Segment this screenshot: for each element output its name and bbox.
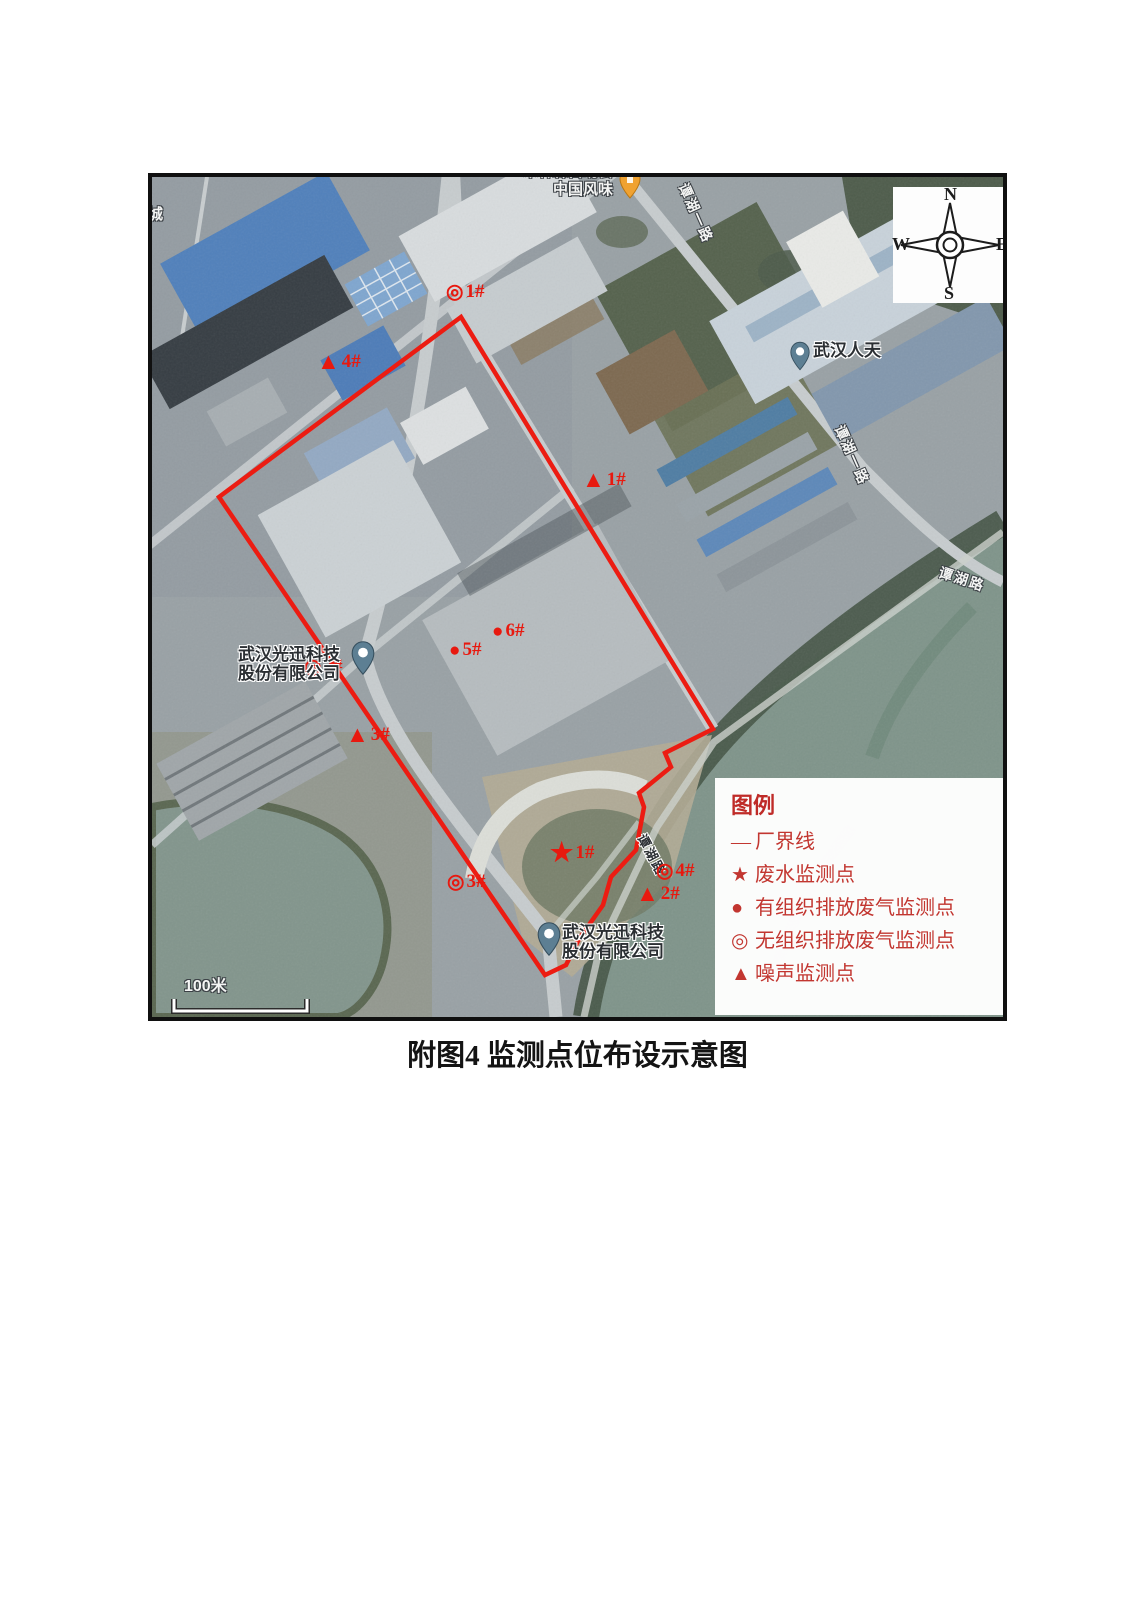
marker-organized-gas-5: ● 5# — [449, 639, 481, 661]
poi-label-rentian: 武汉人天 — [813, 341, 881, 360]
legend-item-boundary: — 厂界线 — [731, 826, 996, 859]
marker-unorganized-gas-1: ◎ 1# — [446, 281, 484, 303]
poi-guangxun1-line1: 武汉光迅科技 — [238, 645, 340, 664]
boundary-line-icon: — — [731, 826, 755, 859]
organized-gas-icon: ● — [492, 622, 503, 641]
restaurant-label-line2: 中国风味 — [497, 181, 613, 199]
guangxun-pin-2-icon — [536, 921, 562, 957]
marker-noise-4: ▲ 4# — [317, 350, 361, 373]
noise-icon: ▲ — [731, 958, 755, 991]
restaurant-label: 木林森自助餐 中国风味 — [497, 173, 613, 199]
edge-partial-label: 城 — [148, 203, 163, 224]
poi-label-guangxun-1: 武汉光迅科技 股份有限公司 — [238, 645, 340, 683]
wastewater-icon: ★ — [731, 859, 755, 892]
scale-bar-icon — [170, 996, 312, 1016]
organized-gas-icon: ● — [731, 892, 755, 925]
wastewater-icon: ★ — [550, 840, 573, 866]
compass-east-label: E — [996, 234, 1007, 255]
restaurant-pin-icon — [618, 173, 642, 199]
scale-bar: 100米 — [170, 972, 312, 1021]
compass-rose: N S W E — [893, 187, 1007, 303]
marker-wastewater-1: ★ 1# — [550, 840, 594, 866]
organized-gas-icon: ● — [449, 641, 460, 660]
unorganized-gas-icon: ◎ — [731, 925, 755, 958]
scale-bar-label: 100米 — [184, 972, 312, 996]
marker-unorganized-gas-4: ◎ 4# — [656, 860, 694, 882]
legend-title: 图例 — [731, 788, 996, 820]
noise-icon: ▲ — [636, 882, 659, 905]
noise-icon: ▲ — [346, 723, 369, 746]
poi-label-guangxun-2: 武汉光迅科技 股份有限公司 — [562, 923, 664, 961]
figure-caption: 附图4 监测点位布设示意图 — [148, 1032, 1007, 1074]
unorganized-gas-icon: ◎ — [446, 282, 463, 302]
marker-noise-1: ▲ 1# — [582, 468, 626, 491]
marker-unorganized-gas-3: ◎ 3# — [447, 871, 485, 893]
document-page: 木林森自助餐 中国风味 谭湖一路 谭湖一路 谭湖路 谭湖路 城 武汉人天 武汉光… — [0, 0, 1131, 1600]
legend-panel: 图例 — 厂界线 ★ 废水监测点 ● 有组织排放废气监测点 ◎ 无组织排放废气监… — [715, 778, 1004, 1015]
rentian-pin-icon — [789, 341, 811, 371]
poi-guangxun2-line2: 股份有限公司 — [562, 942, 664, 961]
legend-item-unorganized-gas: ◎ 无组织排放废气监测点 — [731, 925, 996, 958]
legend-item-organized-gas: ● 有组织排放废气监测点 — [731, 892, 996, 925]
unorganized-gas-icon: ◎ — [656, 861, 673, 881]
guangxun-pin-1-icon — [350, 640, 376, 676]
noise-icon: ▲ — [317, 350, 340, 373]
noise-icon: ▲ — [582, 468, 605, 491]
marker-organized-gas-6: ● 6# — [492, 620, 524, 642]
poi-guangxun2-line1: 武汉光迅科技 — [562, 923, 664, 942]
compass-north-label: N — [944, 184, 957, 205]
poi-guangxun1-line2: 股份有限公司 — [238, 664, 340, 683]
unorganized-gas-icon: ◎ — [447, 872, 464, 892]
compass-south-label: S — [944, 283, 954, 304]
marker-noise-3: ▲ 3# — [346, 723, 390, 746]
legend-item-noise: ▲ 噪声监测点 — [731, 958, 996, 991]
satellite-map: 木林森自助餐 中国风味 谭湖一路 谭湖一路 谭湖路 谭湖路 城 武汉人天 武汉光… — [148, 173, 1007, 1021]
compass-west-label: W — [892, 234, 910, 255]
restaurant-label-line1: 木林森自助餐 — [497, 173, 613, 181]
legend-item-wastewater: ★ 废水监测点 — [731, 859, 996, 892]
marker-noise-2: ▲ 2# — [636, 882, 680, 905]
